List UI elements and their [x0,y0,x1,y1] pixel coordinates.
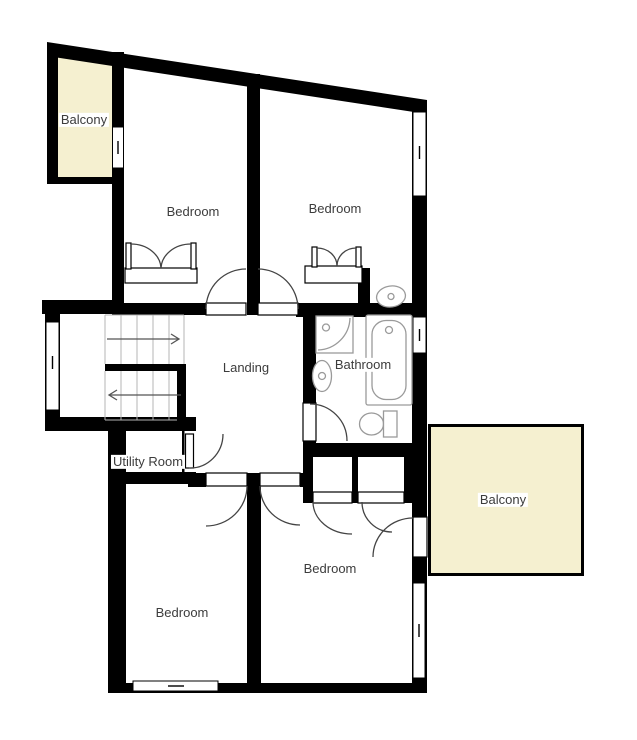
pedestal-basin-icon [313,361,332,392]
door-utility-room [186,434,224,468]
room-label-balcony-right: Balcony [478,493,528,507]
balcony-bottom-wall [47,177,112,184]
door-balcony-right [373,517,427,557]
bathroom-left-wall [303,313,316,403]
bedroom-tl-bottom-wall [112,303,206,315]
central-dividing-wall-top [247,74,260,315]
stair-down-arrow [109,390,181,400]
closets-left-wall [303,443,313,503]
room-label-bedroom-bottom-right: Bedroom [302,562,359,576]
balcony-left-wall [47,44,58,184]
wardrobe-bedroom-top-left [125,243,197,283]
stair-side-wall [177,364,186,423]
door-bedroom-top-left [206,269,246,315]
window-bedroom-bottom-right [413,583,425,678]
room-label-bathroom: Bathroom [333,358,393,372]
room-label-landing: Landing [221,361,271,375]
bathroom-bottom-wall [303,443,427,457]
bathroom-left-wall-stub [303,441,316,447]
stair-up-arrow [107,334,179,344]
door-bedroom-bottom-left [206,473,247,526]
utility-room-bottom-wall [125,472,196,484]
bedroom-tl-left-wall [112,52,124,315]
closets-right-wall [404,457,412,503]
stair-mid-bar [105,364,186,371]
room-label-balcony-top-left: Balcony [59,113,109,127]
toilet-icon [360,411,398,437]
door-closet-left [313,492,352,534]
room-label-utility-room: Utility Room [111,455,185,469]
window-bathroom [413,317,426,353]
door-bedroom-top-right [258,269,298,315]
door-bedroom-bottom-right [260,473,300,525]
wardrobe-bedroom-top-right [305,247,362,283]
room-label-bedroom-top-left: Bedroom [165,205,222,219]
left-exterior-wall-lower [108,430,126,693]
central-dividing-wall-bottom [247,473,261,689]
room-label-bedroom-top-right: Bedroom [307,202,364,216]
window-balcony-top-left [113,127,124,168]
shower-icon [316,316,353,353]
window-bedroom-top-right [413,112,426,196]
floor-plan: Balcony Bedroom Bedroom Landing Bathroom… [0,0,637,740]
door-closet-right [358,492,404,532]
closets-divider-wall [352,455,358,503]
door-bathroom [303,403,347,441]
room-label-bedroom-bottom-left: Bedroom [154,606,211,620]
window-bedroom-bottom-left [133,681,218,691]
hall-wall-chunk-left [188,473,206,487]
window-landing-left [46,322,59,410]
